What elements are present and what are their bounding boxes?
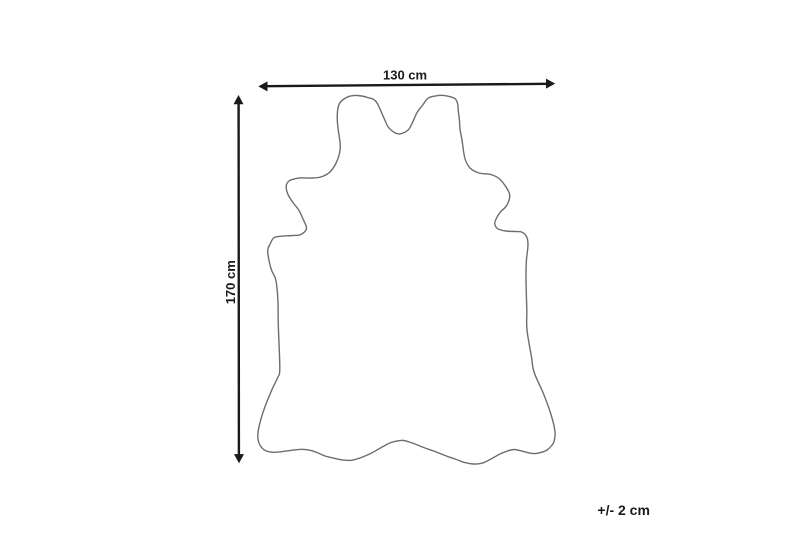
svg-text:+/- 2 cm: +/- 2 cm — [597, 502, 650, 518]
svg-text:170 cm: 170 cm — [223, 260, 238, 304]
svg-text:130 cm: 130 cm — [383, 68, 427, 83]
